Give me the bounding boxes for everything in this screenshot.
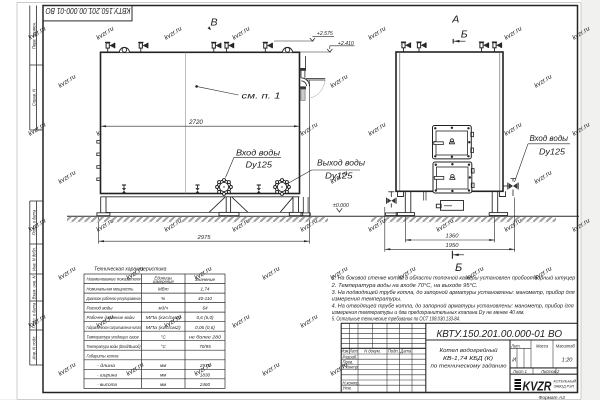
svg-text:%: % <box>161 296 165 301</box>
svg-text:измерения: измерения <box>153 279 175 284</box>
svg-text:И: И <box>512 358 516 364</box>
svg-text:Техническая характеристика: Техническая характеристика <box>94 266 167 272</box>
svg-text:1,74: 1,74 <box>201 287 210 292</box>
svg-text:КВ-1,74 КБД (К): КВ-1,74 КБД (К) <box>443 356 493 362</box>
svg-text:°С: °С <box>161 344 167 349</box>
svg-text:КВТУ.150.201.00.000-01 ВО: КВТУ.150.201.00.000-01 ВО <box>45 6 130 16</box>
svg-text:KVZR: KVZR <box>523 379 553 393</box>
svg-text:Масштаб: Масштаб <box>556 343 576 348</box>
svg-text:не более 280: не более 280 <box>189 334 221 339</box>
svg-text:Справ. N: Справ. N <box>32 89 37 106</box>
svg-text:Выход воды: Выход воды <box>317 158 365 167</box>
svg-text:Dy125: Dy125 <box>539 146 565 156</box>
svg-text:5. Остальные технические треб: 5. Остальные технические требования по О… <box>332 317 461 323</box>
svg-text:Диапазон рабочего регулировани: Диапазон рабочего регулирования <box>86 296 141 302</box>
svg-text:64: 64 <box>202 306 208 311</box>
svg-text:Изм.: Изм. <box>341 349 349 354</box>
svg-text:Dy125: Dy125 <box>325 170 353 180</box>
svg-text:- высота: - высота <box>97 383 117 388</box>
svg-text:1:20: 1:20 <box>562 358 574 364</box>
svg-text:Масса: Масса <box>536 343 549 348</box>
svg-text:Температура уходящих газов: Температура уходящих газов <box>87 334 139 340</box>
svg-text:1830: 1830 <box>200 372 211 377</box>
svg-text:Вход воды: Вход воды <box>236 148 280 157</box>
svg-text:Расход воды: Расход воды <box>87 306 113 312</box>
svg-text:по техническому заданию: по техническому заданию <box>431 363 508 369</box>
svg-text:2460: 2460 <box>199 382 211 387</box>
svg-text:м3/ч: м3/ч <box>159 306 169 311</box>
svg-text:Значение: Значение <box>195 277 216 282</box>
svg-text:2975: 2975 <box>199 363 211 368</box>
svg-text:Температура воды (Вход/Выход): Температура воды (Вход/Выход) <box>87 344 141 350</box>
svg-text:Габариты котла: Габариты котла <box>87 353 119 359</box>
svg-text:Лист: Лист <box>349 349 358 354</box>
svg-text:Листов 2: Листов 2 <box>540 369 560 374</box>
svg-text:Подп.: Подп. <box>388 349 399 354</box>
svg-text:мм: мм <box>160 372 167 377</box>
svg-text:2. Температура воды на входе: 2. Температура воды на входе 70°С, на вы… <box>331 283 478 289</box>
svg-text:Котел водогрейный: Котел водогрейный <box>440 347 499 354</box>
svg-text:Утв.: Утв. <box>343 386 352 391</box>
svg-text:А: А <box>451 14 459 26</box>
svg-text:ЗАВОД РЭП: ЗАВОД РЭП <box>554 384 575 388</box>
svg-text:Инв. N подл.: Инв. N подл. <box>32 336 37 360</box>
svg-text:Dy125: Dy125 <box>246 160 273 170</box>
svg-text:Б: Б <box>461 29 468 41</box>
svg-text:3. На подводящей трубе котла,: 3. На подводящей трубе котла, до запорно… <box>332 289 575 296</box>
svg-text:МВт: МВт <box>158 287 169 292</box>
svg-text:0,6 (6,0): 0,6 (6,0) <box>196 315 214 320</box>
svg-text:Лит.: Лит. <box>510 343 521 348</box>
svg-text:Наименование показателя: Наименование показателя <box>87 277 141 282</box>
svg-text:4. На отводящей трубе котла,: 4. На отводящей трубе котла, до запорной… <box>332 303 574 310</box>
svg-text:2720: 2720 <box>188 119 203 126</box>
svg-text:В: В <box>211 17 218 29</box>
svg-text:Дата: Дата <box>399 349 412 354</box>
svg-text:Инв. N дубл.: Инв. N дубл. <box>32 247 37 271</box>
svg-text:N докум.: N докум. <box>364 349 381 354</box>
svg-text:мм: мм <box>160 382 167 387</box>
svg-text:- ширина: - ширина <box>97 373 117 378</box>
svg-text:0,06 (0,6): 0,06 (0,6) <box>195 325 215 330</box>
svg-text:Подп. и дата: Подп. и дата <box>32 209 37 235</box>
svg-text:Подп. и дата: Подп. и дата <box>32 302 37 328</box>
svg-text:+2.575: +2.575 <box>317 31 333 37</box>
svg-text:Взам. инв. N: Взам. инв. N <box>32 276 37 300</box>
svg-text:1. На боковой стенке котла в: 1. На боковой стенке котла в области топ… <box>332 275 576 282</box>
svg-text:Вход воды: Вход воды <box>530 134 569 143</box>
svg-text:±0.000: ±0.000 <box>333 203 349 209</box>
svg-text:°С: °С <box>161 334 167 339</box>
svg-text:измерения температуры и два пр: измерения температуры и два предохраните… <box>332 310 525 316</box>
svg-text:Номинальная мощность: Номинальная мощность <box>87 287 134 293</box>
svg-text:1360: 1360 <box>446 234 460 240</box>
svg-text:2975: 2975 <box>197 235 212 241</box>
svg-text:40-110: 40-110 <box>198 296 212 301</box>
svg-text:мм: мм <box>160 363 167 368</box>
svg-text:МПа (кгс/см2): МПа (кгс/см2) <box>146 315 182 320</box>
svg-text:Гидравлическое сопротивление к: Гидравлическое сопротивление котла <box>87 325 142 331</box>
svg-text:Рабочее давление воды: Рабочее давление воды <box>87 315 135 321</box>
svg-text:КВТУ.150.201.00.000-01 ВО: КВТУ.150.201.00.000-01 ВО <box>437 329 563 340</box>
svg-text:Т.контр.: Т.контр. <box>343 365 360 370</box>
svg-text:1950: 1950 <box>446 243 460 249</box>
svg-text:Б: Б <box>455 262 462 274</box>
svg-text:см. п. 1: см. п. 1 <box>242 92 281 101</box>
svg-text:КОТЕЛЬНЫЙ: КОТЕЛЬНЫЙ <box>554 380 577 384</box>
svg-text:+2.410: +2.410 <box>338 41 354 47</box>
svg-text:Лист 1: Лист 1 <box>512 369 527 374</box>
svg-text:измерения температуры.: измерения температуры. <box>332 297 402 303</box>
svg-text:МПа (кгс/см2): МПа (кгс/см2) <box>146 325 182 330</box>
svg-text:Перв. примен.: Перв. примен. <box>32 22 37 49</box>
svg-text:- длина: - длина <box>97 363 115 369</box>
svg-text:70/95: 70/95 <box>199 344 211 349</box>
svg-text:Формат А3: Формат А3 <box>539 395 566 400</box>
